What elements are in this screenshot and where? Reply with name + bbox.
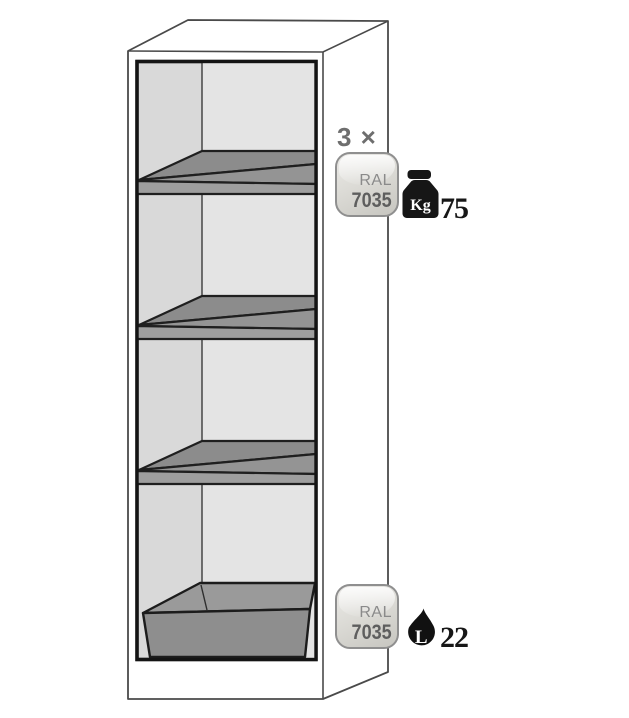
- volume-unit-text: L: [415, 627, 428, 648]
- shelf-front-edge: [137, 181, 316, 194]
- weight-handle: [408, 170, 432, 179]
- ral-code: 7035: [352, 622, 392, 643]
- ral-7035-badge-sump: RAL 7035: [335, 584, 399, 649]
- shelf-front-edge: [137, 471, 316, 484]
- ral-badge-text: RAL 7035: [345, 172, 392, 211]
- liquid-drop-icon: L: [407, 608, 436, 651]
- ral-badge-text: RAL 7035: [345, 604, 392, 643]
- ral-label: RAL: [345, 604, 392, 622]
- sump-capacity-value: 22: [440, 623, 468, 653]
- product-diagram: 3 × RAL 7035 Kg 75 RAL 7035 L 22: [0, 0, 629, 718]
- weight-unit-text: Kg: [410, 197, 430, 214]
- shelf-front-edge: [137, 326, 316, 339]
- ral-label: RAL: [345, 172, 392, 190]
- ral-code: 7035: [352, 190, 392, 211]
- ral-7035-badge-shelves: RAL 7035: [335, 152, 399, 217]
- kettlebell-weight-icon: Kg: [402, 169, 439, 219]
- sump-front-face: [143, 609, 310, 657]
- max-load-value: 75: [440, 194, 468, 224]
- shelf-count-label: 3 ×: [337, 124, 377, 150]
- cabinet-illustration: [0, 0, 629, 718]
